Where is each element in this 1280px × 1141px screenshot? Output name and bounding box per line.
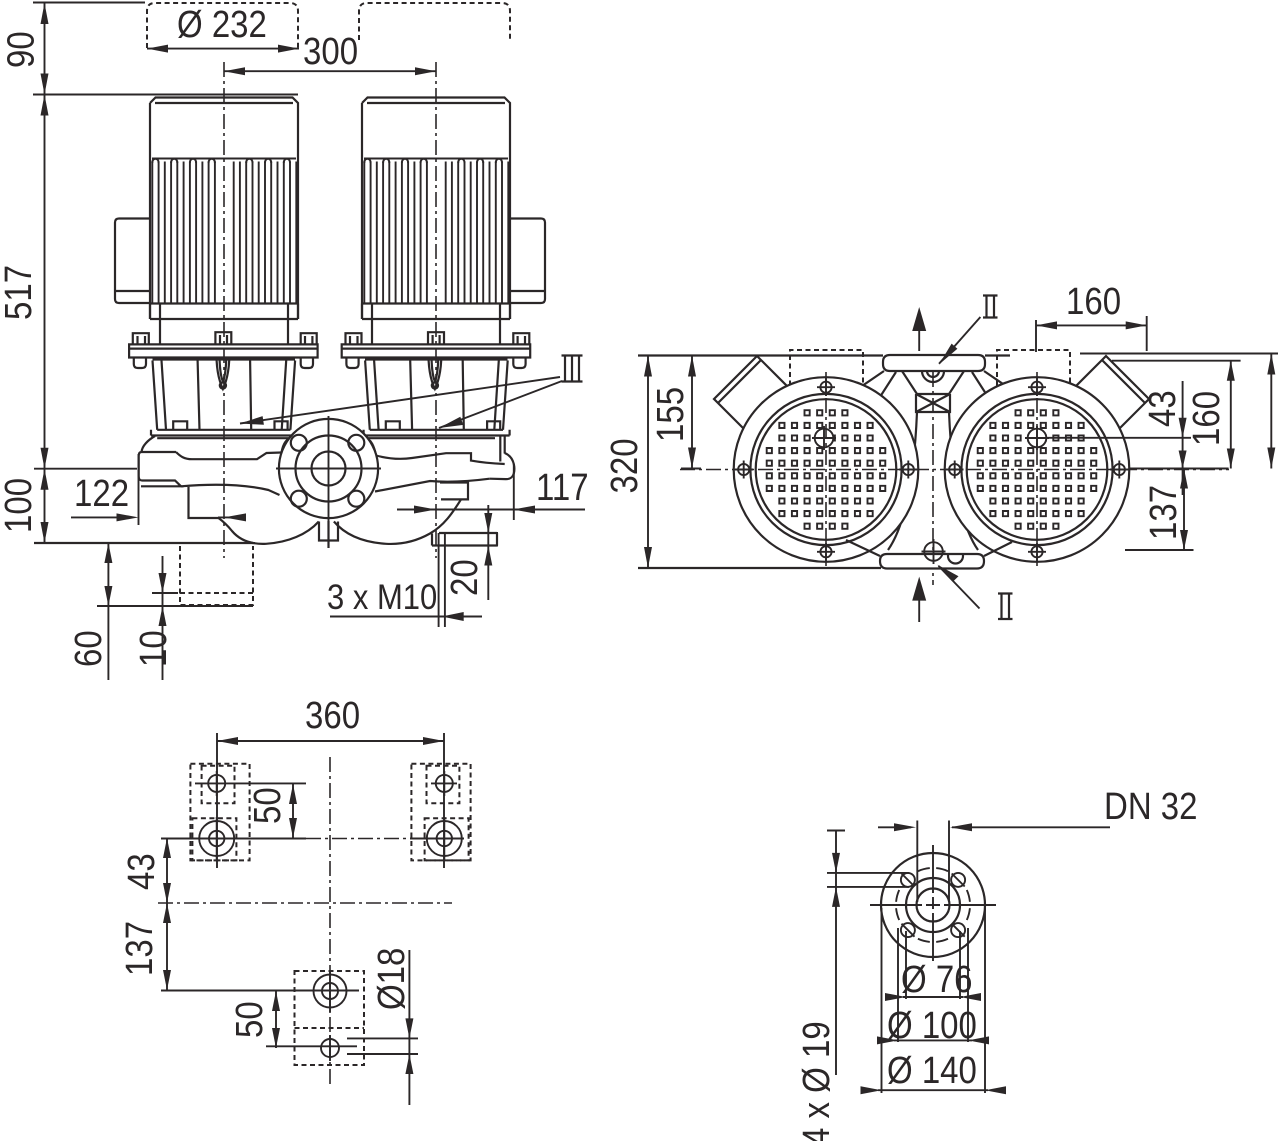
svg-text:360: 360: [305, 694, 360, 737]
svg-text:Ø 140: Ø 140: [887, 1049, 977, 1092]
svg-text:100: 100: [0, 478, 40, 533]
svg-text:Ø 76: Ø 76: [901, 958, 973, 1001]
svg-text:517: 517: [0, 265, 40, 320]
svg-text:50: 50: [228, 1001, 271, 1038]
svg-text:122: 122: [74, 472, 129, 515]
svg-text:300: 300: [303, 30, 358, 73]
svg-text:320: 320: [603, 438, 646, 493]
svg-text:137: 137: [118, 921, 161, 976]
svg-text:137: 137: [1142, 485, 1185, 540]
svg-text:Ø18: Ø18: [370, 948, 413, 1010]
svg-text:50: 50: [246, 787, 289, 824]
svg-text:20: 20: [443, 559, 486, 596]
svg-text:117: 117: [536, 466, 589, 509]
svg-text:155: 155: [649, 387, 692, 442]
svg-text:Ø 232: Ø 232: [177, 3, 267, 46]
svg-text:43: 43: [1141, 390, 1184, 427]
svg-text:43: 43: [120, 853, 163, 890]
svg-text:4 x Ø 19: 4 x Ø 19: [795, 1021, 838, 1141]
svg-text:160: 160: [1066, 280, 1121, 323]
svg-text:10: 10: [132, 630, 175, 667]
svg-text:160: 160: [1185, 391, 1228, 446]
svg-text:90: 90: [0, 31, 42, 68]
svg-text:DN 32: DN 32: [1104, 785, 1198, 828]
svg-text:60: 60: [67, 630, 110, 667]
svg-text:3 x M10: 3 x M10: [327, 578, 437, 617]
